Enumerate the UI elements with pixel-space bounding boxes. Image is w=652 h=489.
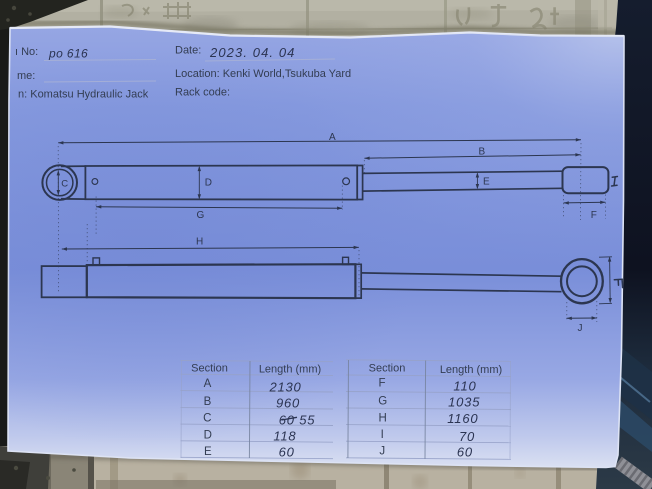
svg-text:960: 960 <box>276 396 300 411</box>
svg-text:J: J <box>578 323 583 334</box>
svg-text:G: G <box>197 210 205 221</box>
svg-text:E: E <box>204 446 212 458</box>
svg-text:ı No:: ı No: <box>15 46 38 58</box>
svg-text:118: 118 <box>273 429 296 444</box>
svg-text:B: B <box>204 396 212 408</box>
svg-text:Date:: Date: <box>175 45 201 57</box>
svg-text:A: A <box>329 132 336 143</box>
svg-text:1160: 1160 <box>447 411 478 426</box>
svg-text:60: 60 <box>279 445 295 460</box>
svg-text:2023. 04. 04: 2023. 04. 04 <box>209 45 296 60</box>
svg-text:1035: 1035 <box>448 395 480 410</box>
svg-text:Location: Kenki World,Tsukuba: Location: Kenki World,Tsukuba Yard <box>175 68 351 80</box>
svg-text:D: D <box>205 177 212 188</box>
svg-text:60 55: 60 55 <box>279 413 316 428</box>
svg-text:2130: 2130 <box>268 380 301 395</box>
svg-text:B: B <box>479 146 486 157</box>
svg-text:H: H <box>196 237 203 248</box>
svg-text:G: G <box>378 396 387 408</box>
svg-text:I: I <box>381 429 384 441</box>
svg-text:Section: Section <box>369 363 406 375</box>
svg-text:n: Komatsu Hydraulic Jack: n: Komatsu Hydraulic Jack <box>18 89 149 101</box>
svg-text:C: C <box>61 178 68 189</box>
svg-text:J: J <box>379 445 385 457</box>
svg-text:F: F <box>591 210 597 221</box>
svg-text:C: C <box>203 412 211 424</box>
svg-text:Length (mm): Length (mm) <box>259 364 321 376</box>
svg-text:Section: Section <box>191 363 228 375</box>
svg-text:me:: me: <box>17 70 35 82</box>
svg-text:F: F <box>378 378 385 390</box>
svg-text:Rack code:: Rack code: <box>175 87 230 99</box>
svg-text:E: E <box>483 176 490 187</box>
svg-text:A: A <box>204 378 212 390</box>
svg-text:H: H <box>379 412 387 424</box>
svg-text:110: 110 <box>453 379 476 394</box>
svg-text:po 616: po 616 <box>48 47 88 61</box>
svg-text:70: 70 <box>459 429 475 444</box>
svg-text:Length (mm): Length (mm) <box>440 364 502 376</box>
svg-text:D: D <box>204 430 212 442</box>
svg-text:60: 60 <box>457 445 473 460</box>
